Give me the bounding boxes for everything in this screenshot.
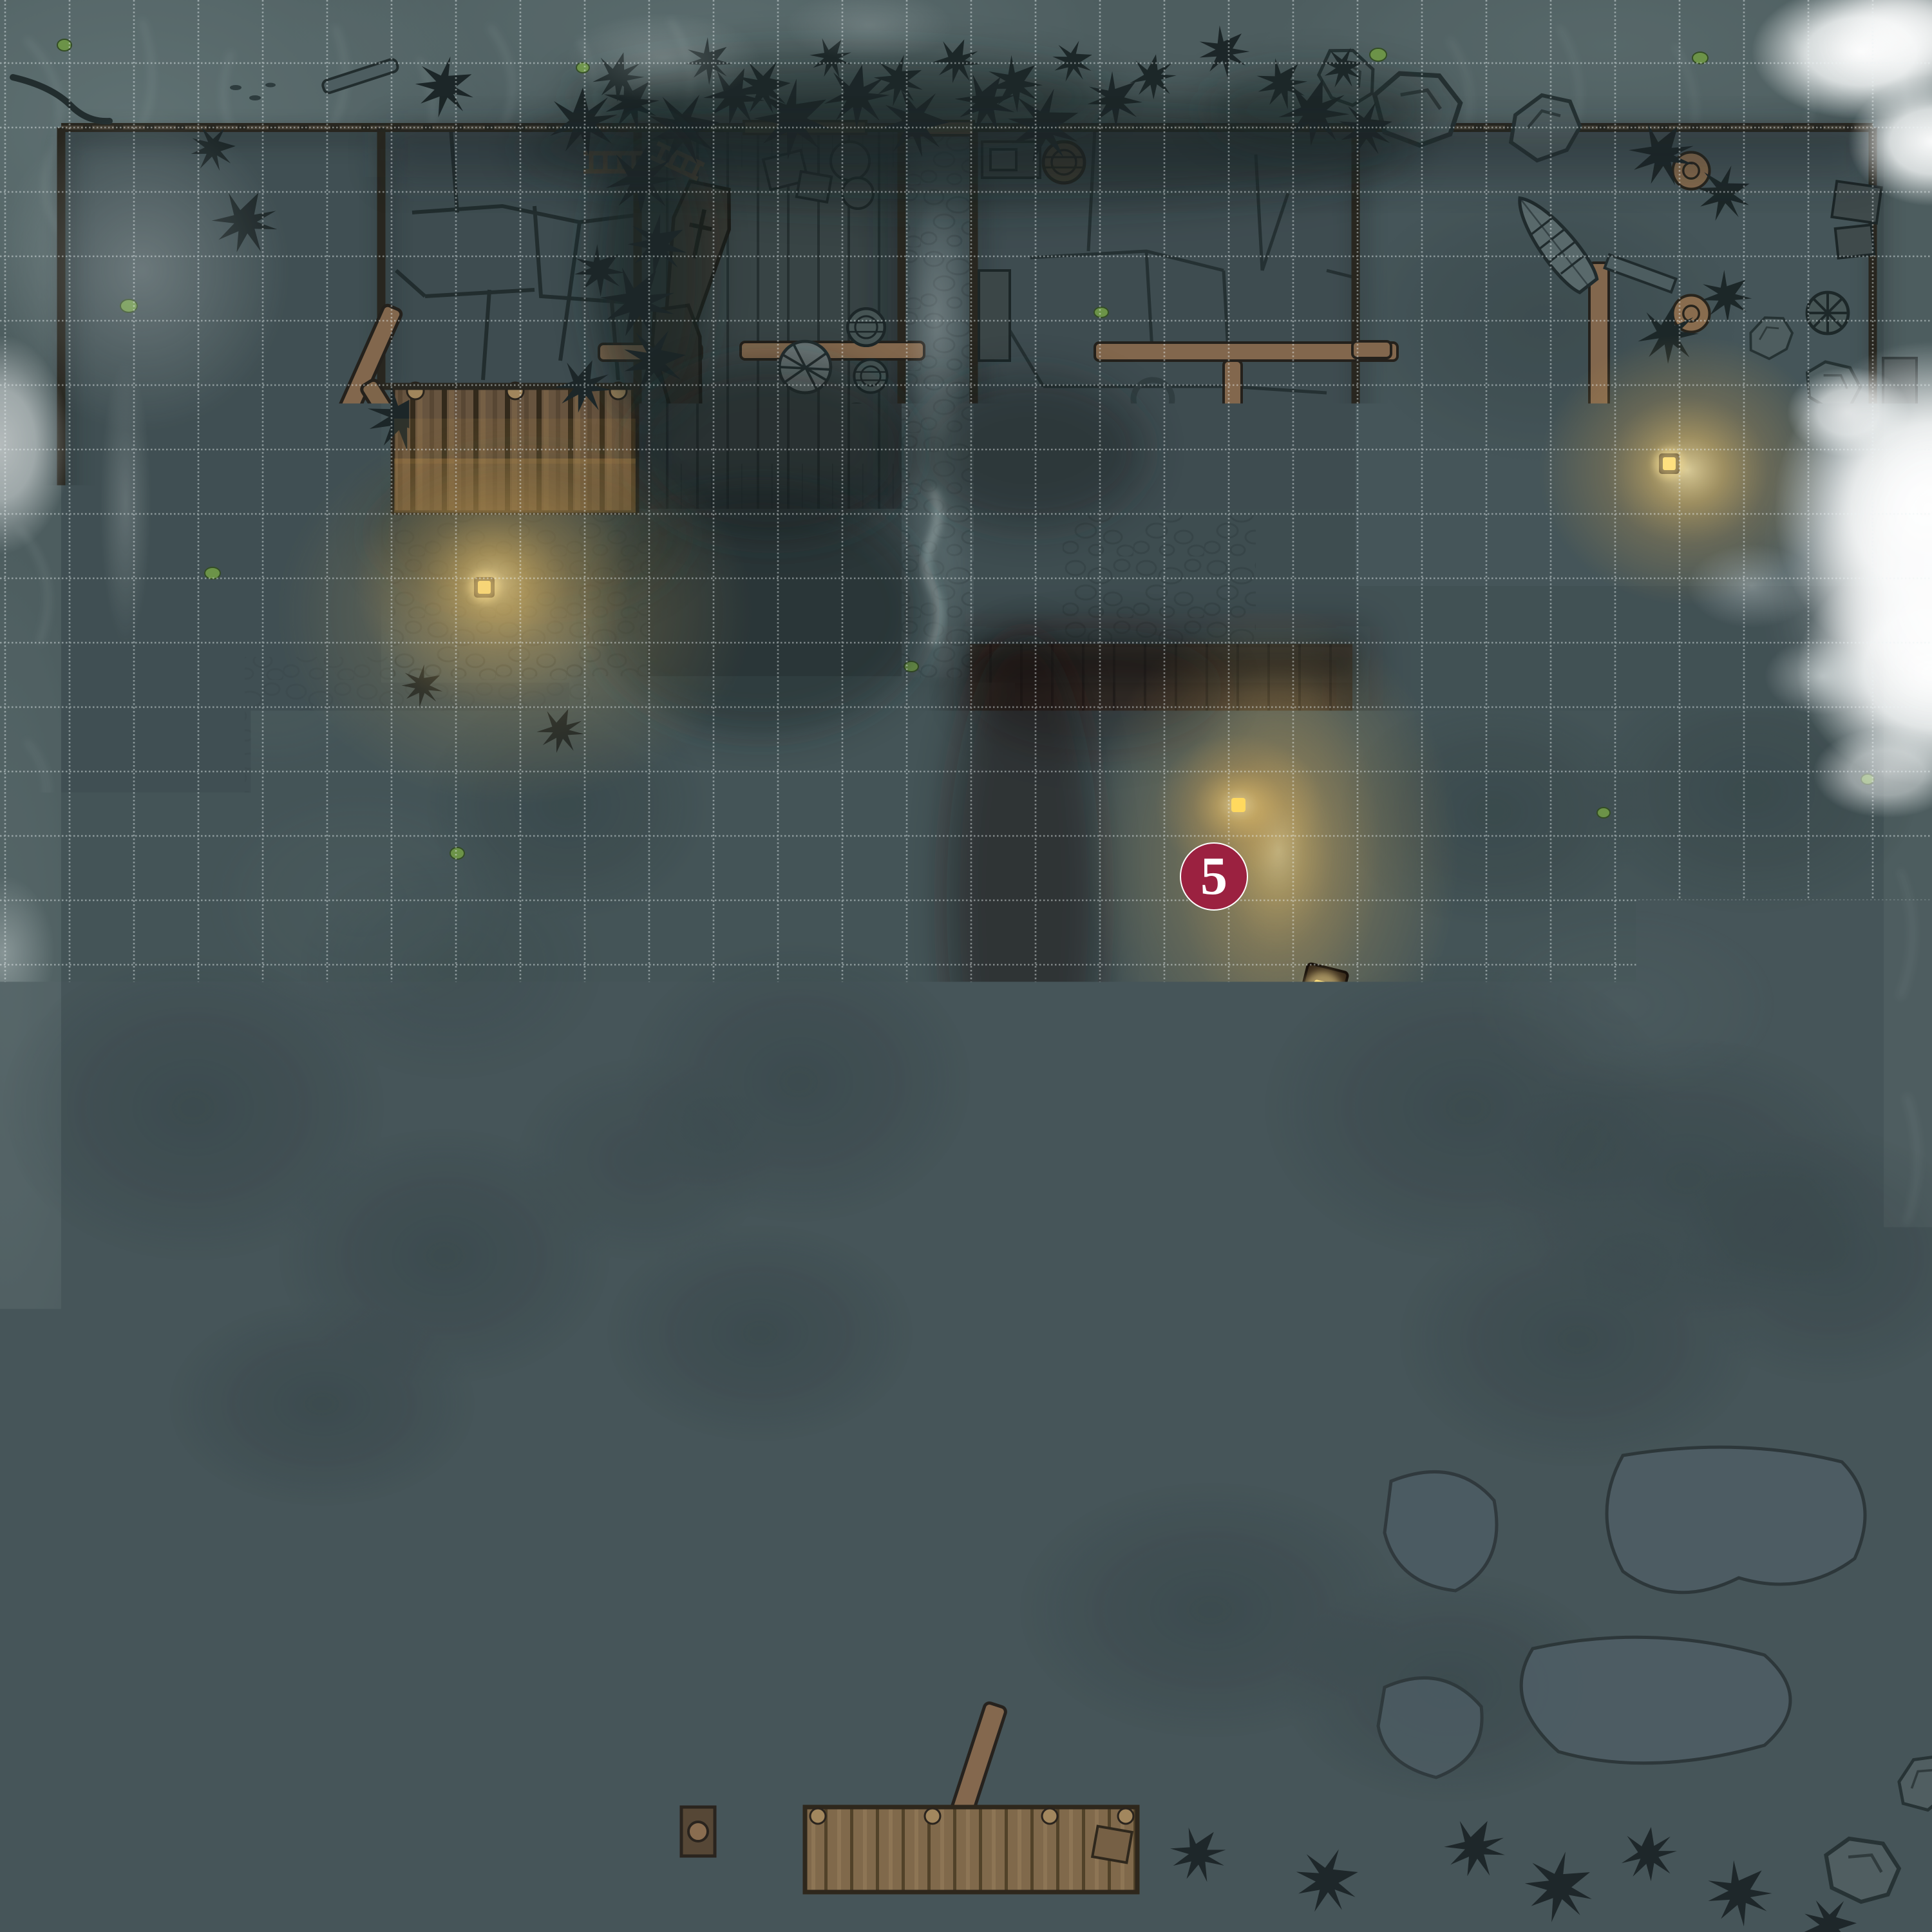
svg-text:3: 3 bbox=[1623, 1576, 1650, 1636]
svg-text:1: 1 bbox=[363, 1655, 390, 1715]
svg-text:4: 4 bbox=[1187, 1238, 1214, 1298]
svg-text:5: 5 bbox=[1200, 846, 1227, 906]
svg-text:2: 2 bbox=[1545, 1180, 1572, 1240]
